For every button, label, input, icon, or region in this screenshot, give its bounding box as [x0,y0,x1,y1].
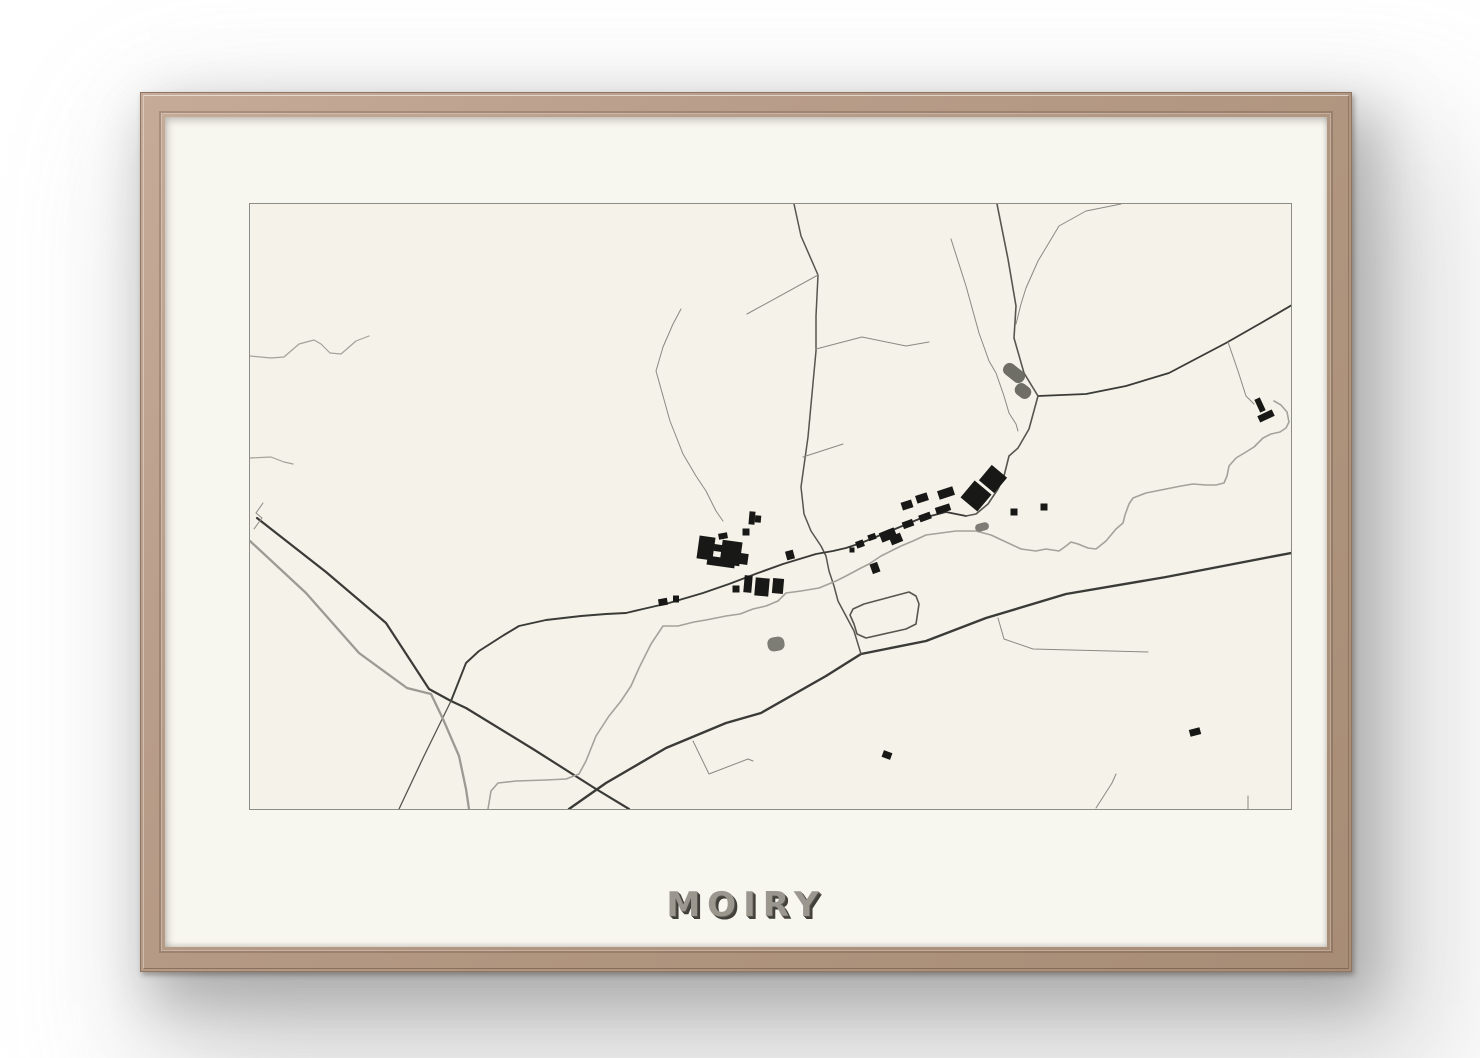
building-footprint [785,550,795,561]
building-footprint [772,578,784,594]
building-footprint [739,553,748,565]
building-footprint [902,519,915,529]
building-footprint [937,486,955,500]
branch-upper-left [747,275,818,314]
building-footprint [915,492,929,503]
building-footprint [850,548,855,553]
tick-bottom-right-a [1096,774,1116,808]
road-gray-parallel [250,541,469,809]
branch-small-east [803,444,843,457]
building-footprint [855,539,865,548]
building-footprint [718,532,728,539]
building-footprint [714,544,723,552]
building-footprint [918,512,932,523]
building-footprint [1011,509,1018,516]
road-ne-to-border [1038,305,1291,396]
ponds-layer [766,360,1033,652]
lane-parallel-ne [951,239,1018,431]
road-loop-track [850,592,919,638]
building-footprint [733,586,740,593]
building-footprint [658,598,668,606]
stream-west-short [250,457,293,464]
building-footprint [1041,504,1048,511]
river-main [488,401,1289,809]
pond-north-a [1001,360,1028,385]
lane-center-fields [656,309,723,521]
building-footprint [673,596,679,603]
poster-title: MOIRY [165,885,1327,925]
poster-mat: MOIRY [165,117,1327,947]
poster-frame: MOIRY [140,92,1352,972]
zigzag-west [254,503,263,529]
building-footprint [1189,727,1201,737]
building-footprint [743,529,750,536]
building-footprint [901,499,914,510]
branch-ne-corner [1228,342,1254,404]
pond-southwest [766,636,785,653]
building-footprint [748,511,755,524]
buildings-layer [658,397,1275,759]
branch-south-field [693,741,753,774]
stream-northwest [250,336,369,358]
map-print-area [249,203,1292,810]
building-footprint [882,750,893,760]
water-and-roads-layer [250,204,1291,809]
lane-ne-from-top [1016,204,1121,324]
road-sw-diagonal [257,518,629,809]
building-footprint [754,577,770,596]
building-footprint [870,562,881,574]
map-drawing [250,204,1291,809]
branch-se-field [998,618,1148,652]
building-footprint [743,575,752,593]
road-main-south [569,553,1291,809]
branch-east-hook [816,337,929,349]
road-vertical-village [794,204,861,654]
building-footprint [1254,397,1265,412]
road-from-top-curve [997,204,1038,396]
building-footprint [755,515,762,522]
